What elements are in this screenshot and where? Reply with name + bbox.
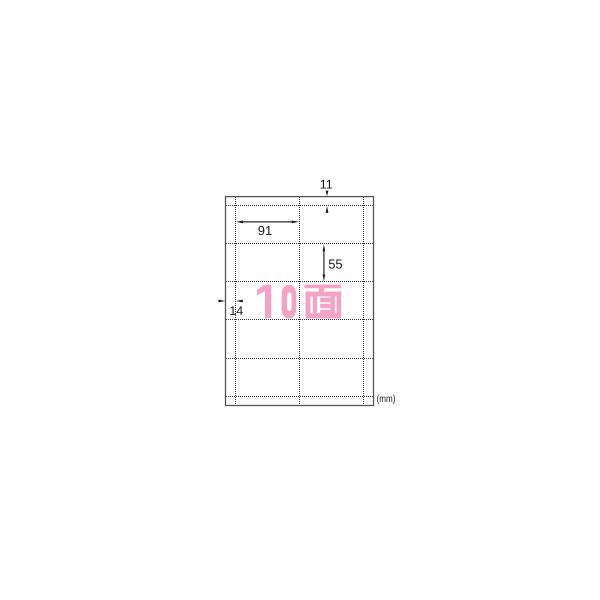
svg-text:14: 14 — [229, 304, 243, 318]
svg-text:(mm): (mm) — [377, 394, 396, 405]
svg-text:55: 55 — [328, 256, 342, 271]
svg-text:91: 91 — [258, 223, 272, 238]
svg-text:11: 11 — [320, 177, 333, 191]
